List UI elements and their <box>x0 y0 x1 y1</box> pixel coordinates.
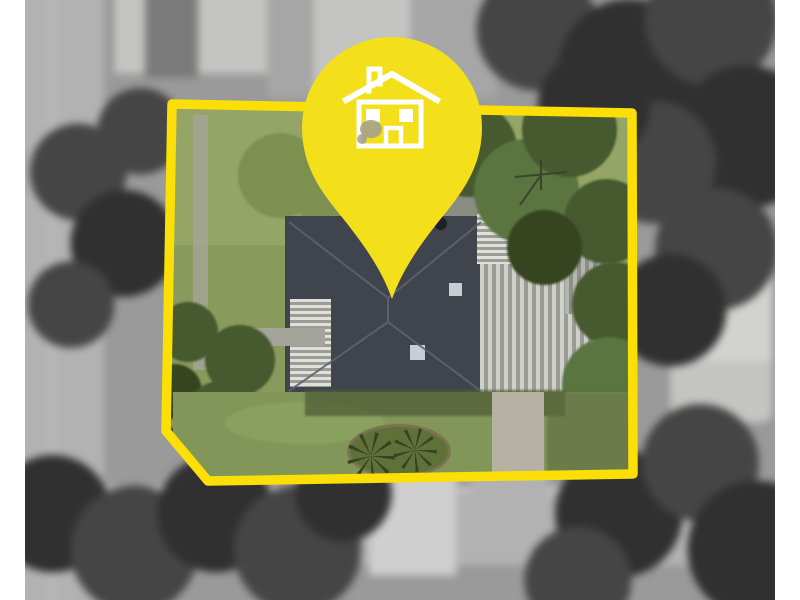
tree <box>507 210 582 285</box>
skylight <box>410 345 425 360</box>
palm-plant <box>347 432 395 480</box>
aerial-photo <box>25 0 775 600</box>
driveway-crossing <box>471 473 548 544</box>
listing-photo-canvas <box>0 0 800 600</box>
driveway-strip <box>145 0 198 78</box>
skylight <box>449 283 462 296</box>
tree <box>97 88 184 175</box>
building-roof <box>313 0 410 90</box>
tree-shadow <box>547 392 635 482</box>
chimney-vent <box>434 217 447 230</box>
tree <box>28 261 115 348</box>
palm-plant <box>393 428 437 472</box>
driveway <box>492 392 544 484</box>
